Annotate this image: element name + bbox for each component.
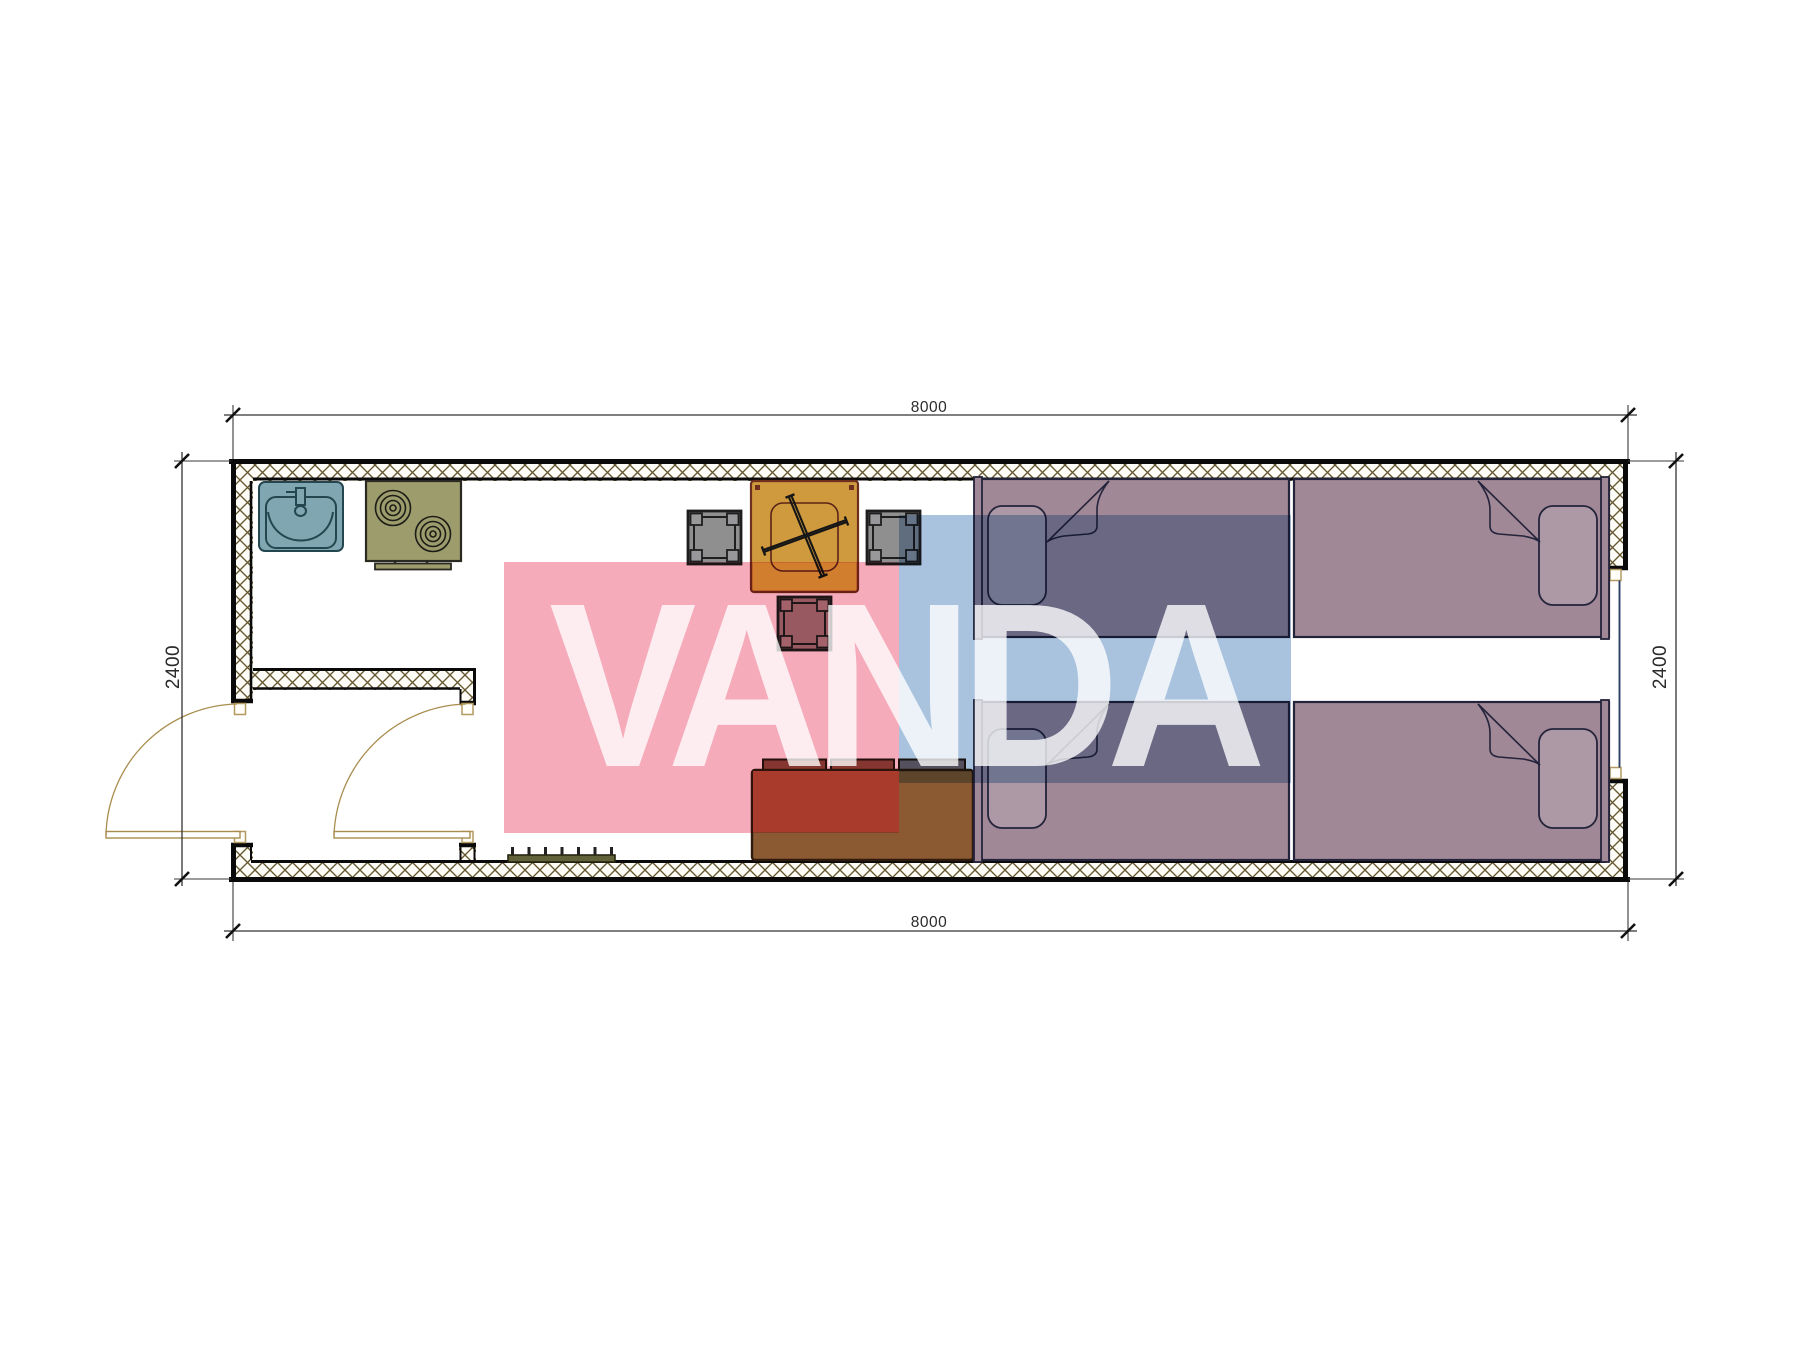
svg-text:2400: 2400 bbox=[1650, 645, 1671, 689]
svg-text:8000: 8000 bbox=[911, 914, 947, 931]
svg-text:8000: 8000 bbox=[911, 399, 947, 416]
svg-text:2400: 2400 bbox=[163, 645, 184, 689]
svg-text:VANDA: VANDA bbox=[549, 554, 1261, 816]
